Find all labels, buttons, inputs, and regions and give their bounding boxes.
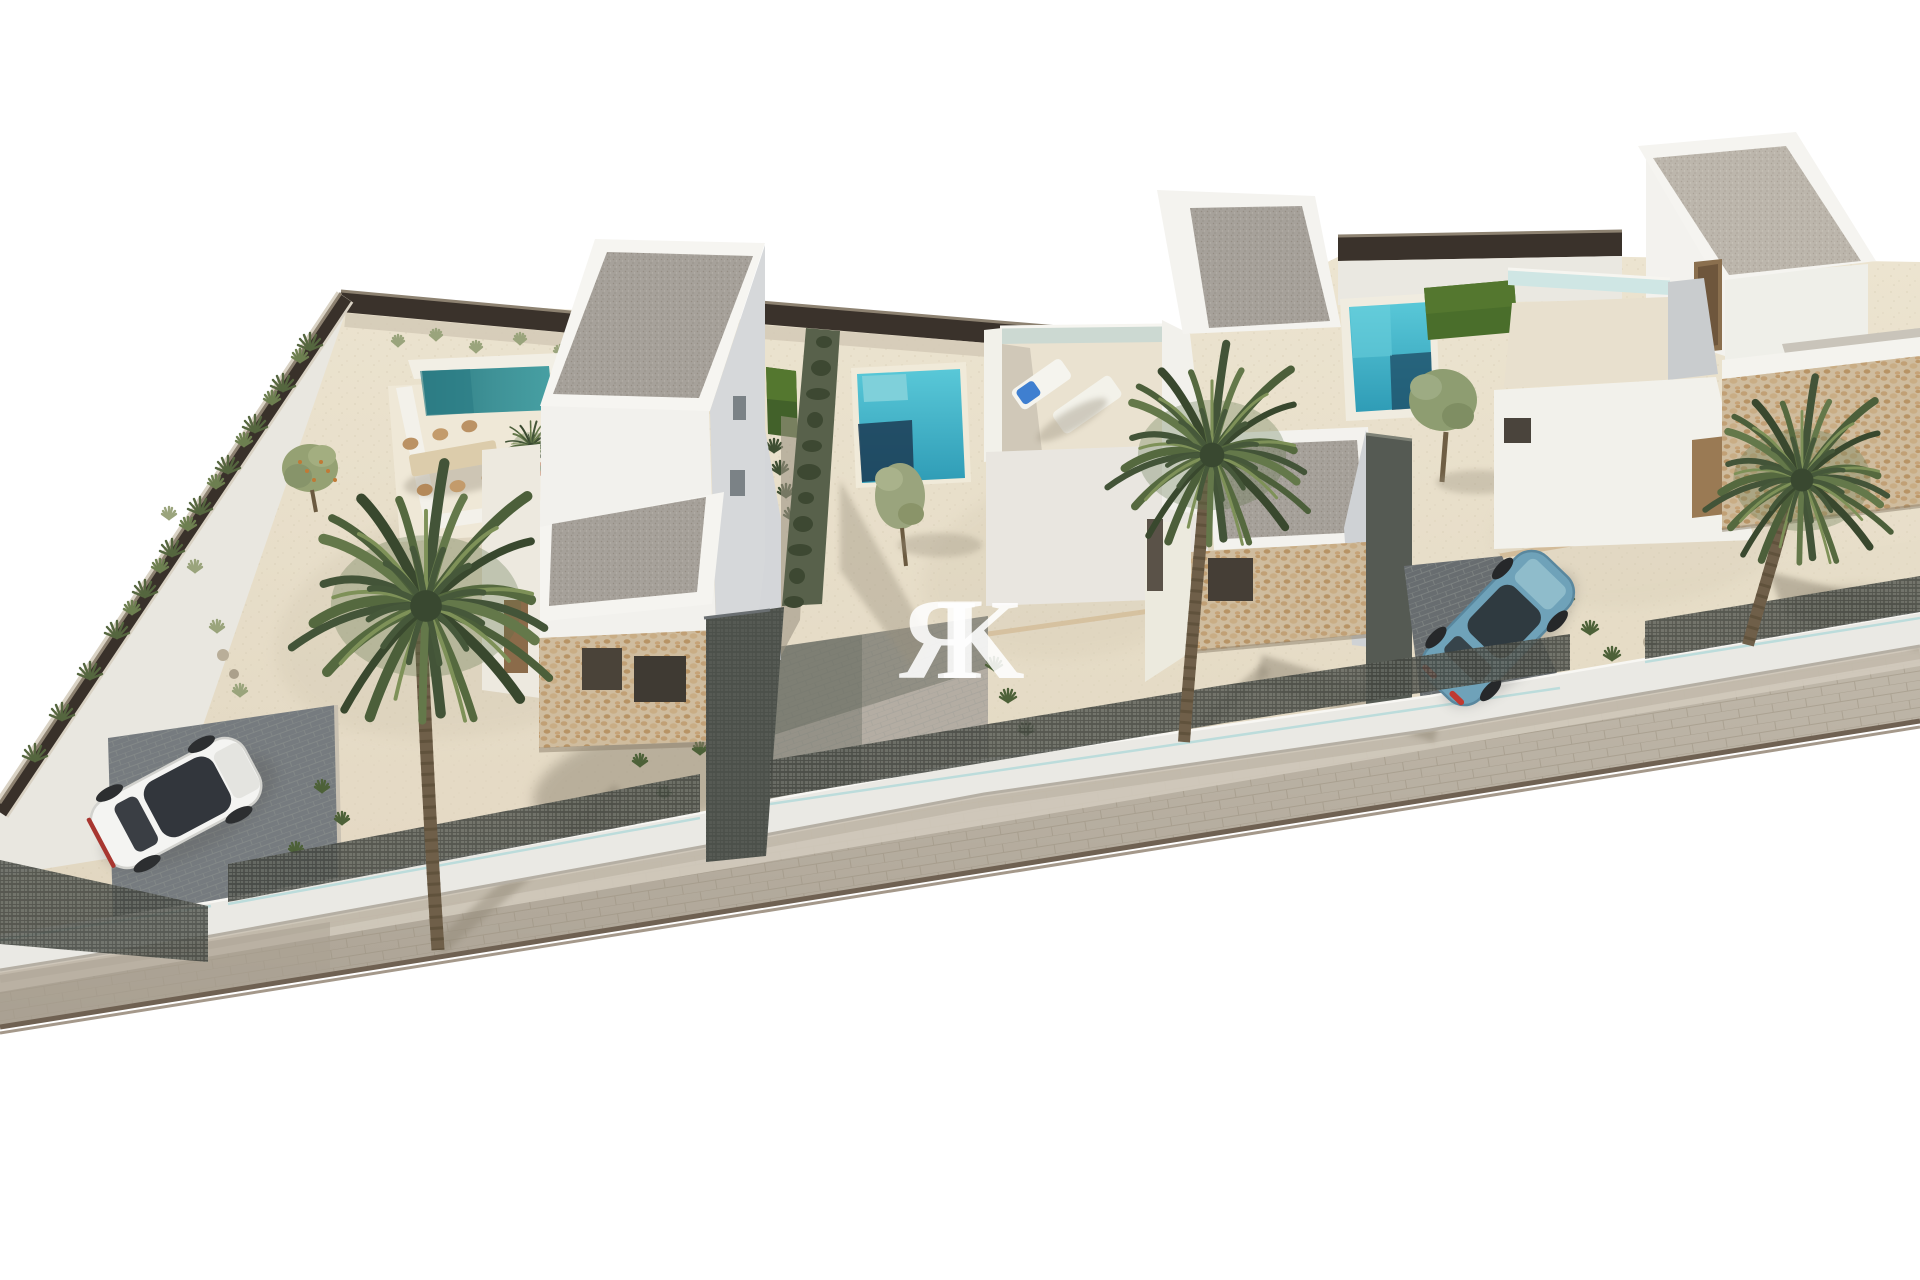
svg-text:K: K bbox=[936, 576, 1025, 703]
